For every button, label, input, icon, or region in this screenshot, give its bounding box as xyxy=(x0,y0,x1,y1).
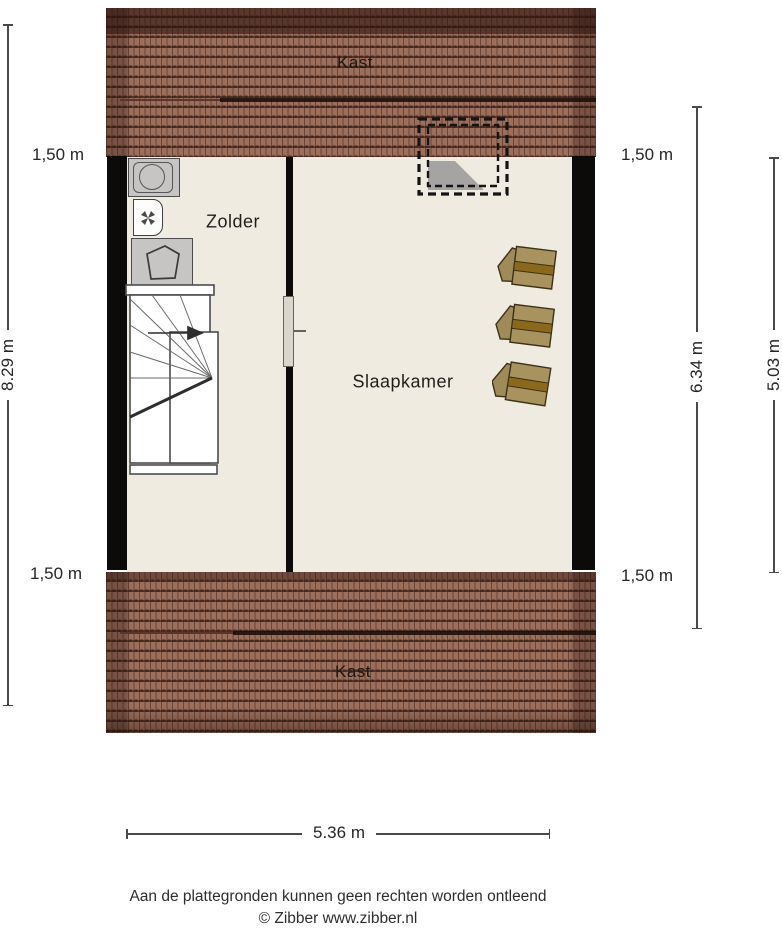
roof-kink-line xyxy=(233,631,596,635)
room-label-zolder: Zolder xyxy=(206,212,260,233)
wall-partition-upper xyxy=(286,157,293,296)
footer: Aan de plattegronden kunnen geen rechten… xyxy=(38,886,638,928)
skylight-dashed-icon xyxy=(416,116,510,198)
winder-stairs-icon xyxy=(124,282,224,478)
room-label-slaapkamer: Slaapkamer xyxy=(352,372,453,393)
dimension-label-bottom-width: 5.36 m xyxy=(302,823,376,843)
dimension-label-left-top: 1,50 m xyxy=(32,145,84,165)
washing-machine-drum xyxy=(139,164,165,190)
room-label-kast-top: Kast xyxy=(337,53,373,73)
roof-ridge xyxy=(106,8,596,34)
dimension-label-right-top: 1,50 m xyxy=(621,145,673,165)
dimension-label-left-total: 8.29 m xyxy=(0,330,18,400)
floorplan-canvas: Kast Zolder Slaapkamer Kast 8.29 m 6.34 … xyxy=(0,0,782,928)
room-label-kast-bottom: Kast xyxy=(335,662,371,682)
dimension-label-right-bottom: 1,50 m xyxy=(621,566,673,586)
roof-kink-line-thin xyxy=(120,99,222,101)
roof-kink-line-thin xyxy=(120,632,235,634)
roof-kink-line xyxy=(220,98,596,102)
roof-window-chair-icon xyxy=(492,240,576,430)
boiler-glyph xyxy=(139,242,185,283)
roof-top-kast xyxy=(106,8,596,157)
fan-glyph xyxy=(139,209,157,227)
footer-disclaimer: Aan de plattegronden kunnen geen rechten… xyxy=(38,886,638,908)
door-panel xyxy=(283,296,294,367)
footer-credit: © Zibber www.zibber.nl xyxy=(38,908,638,928)
dimension-label-left-bottom: 1,50 m xyxy=(30,564,82,584)
wall-partition-lower xyxy=(286,367,293,572)
dimension-label-right-outer: 5.03 m xyxy=(764,330,782,400)
ventilation-unit-icon xyxy=(133,199,163,236)
roof-bottom-kast xyxy=(106,572,596,733)
door-handle xyxy=(294,330,306,332)
washing-machine-icon xyxy=(128,158,180,197)
boiler-icon xyxy=(131,238,193,287)
dimension-label-right-inner: 6.34 m xyxy=(687,332,707,402)
